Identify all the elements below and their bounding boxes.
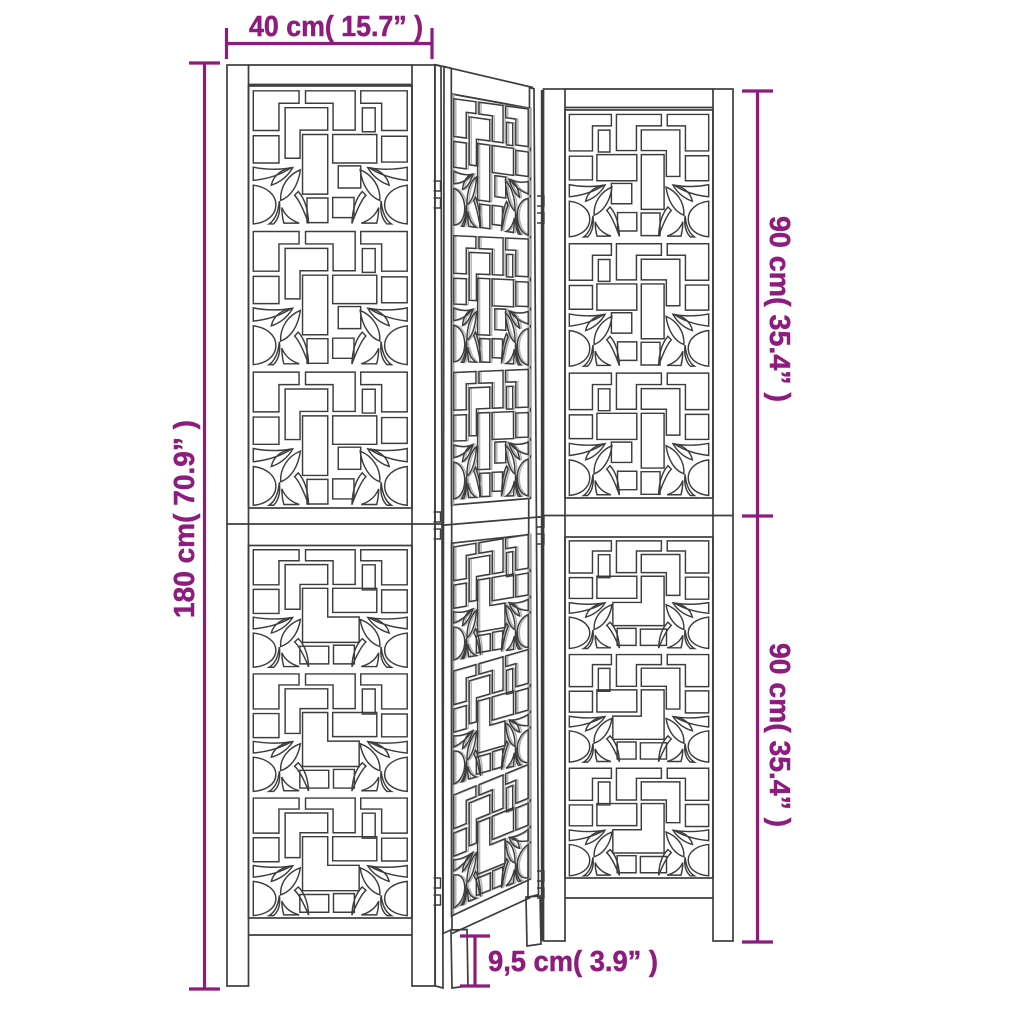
svg-text:180 cm( 70.9” ): 180 cm( 70.9” ) — [169, 420, 201, 618]
svg-text:40 cm( 15.7” ): 40 cm( 15.7” ) — [249, 11, 423, 43]
svg-text:90 cm( 35.4” ): 90 cm( 35.4” ) — [763, 216, 795, 402]
svg-text:9,5 cm( 3.9” ): 9,5 cm( 3.9” ) — [488, 946, 658, 978]
svg-text:90 cm( 35.4” ): 90 cm( 35.4” ) — [763, 643, 795, 827]
